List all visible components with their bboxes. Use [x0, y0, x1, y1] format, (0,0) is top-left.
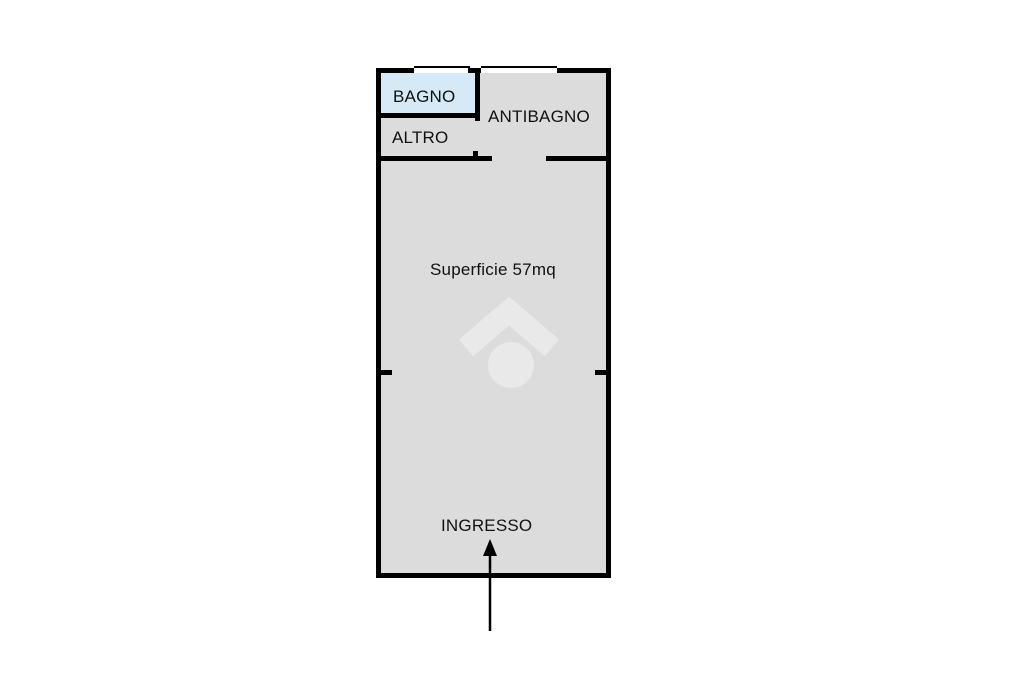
surface-label: Superficie 57mq: [430, 261, 556, 280]
outer-wall-left: [376, 68, 381, 578]
bagno-label: BAGNO: [393, 88, 455, 107]
ingresso-label: INGRESSO: [441, 517, 532, 536]
mid-wall-stub-left: [376, 370, 392, 375]
house-logo-watermark-icon: [440, 280, 590, 400]
window-marker-bagno: [414, 66, 470, 68]
outer-wall-right: [606, 68, 611, 578]
outer-wall-top-segment-right: [557, 68, 611, 73]
floorplan-image: BAGNO ANTIBAGNO ALTRO Superficie 57mq IN…: [0, 0, 1024, 682]
window-marker-antibagno: [481, 66, 557, 68]
interior-wall-left-segment: [376, 156, 492, 161]
bagno-bottom-wall: [376, 113, 480, 118]
antibagno-label: ANTIBAGNO: [488, 108, 590, 127]
outer-wall-top-segment-left: [376, 68, 414, 73]
entrance-arrow-icon: [480, 535, 500, 635]
interior-wall-right-segment: [546, 156, 611, 161]
mid-wall-stub-right: [595, 370, 611, 375]
altro-label: ALTRO: [392, 129, 448, 148]
